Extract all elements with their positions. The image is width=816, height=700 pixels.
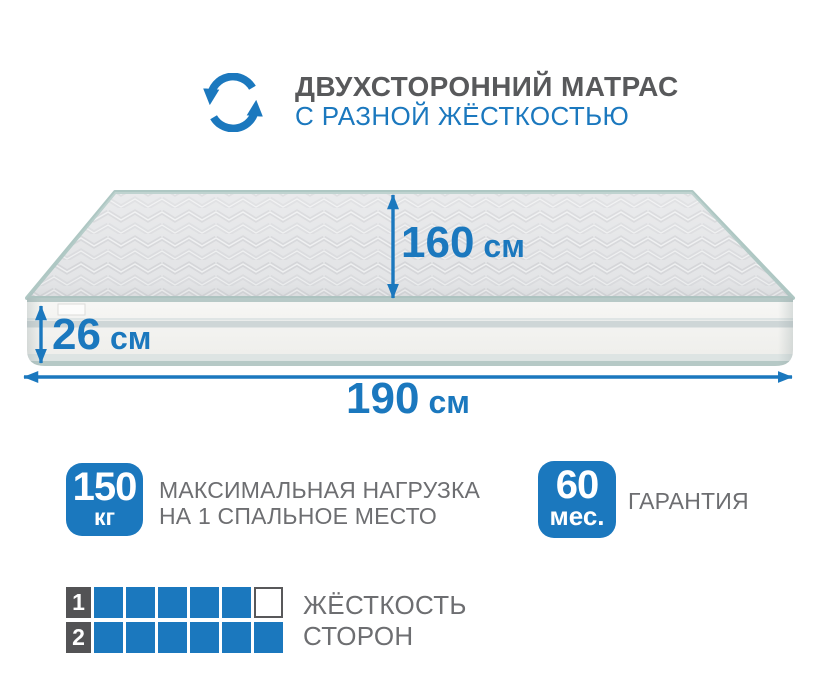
firmness-cell [94,622,123,653]
thickness-dimension-label: 26 см [52,313,151,357]
max-load-label: МАКСИМАЛЬНАЯ НАГРУЗКА НА 1 СПАЛЬНОЕ МЕСТ… [159,477,480,529]
firmness-cell [254,587,283,618]
warranty-label: ГАРАНТИЯ [628,488,749,514]
firmness-row-number: 2 [66,622,91,653]
firmness-cell [126,587,155,618]
firmness-row: 2 [66,622,283,653]
firmness-row-number: 1 [66,587,91,618]
max-load-unit: кг [94,505,115,529]
warranty-value: 60 [556,468,599,503]
firmness-cell [126,622,155,653]
warranty-badge: 60 мес. [538,461,616,538]
top-width-dimension-label: 160 см [401,221,525,265]
firmness-cell [254,622,283,653]
max-load-label-line1: МАКСИМАЛЬНАЯ НАГРУЗКА [159,477,480,503]
firmness-cell [222,587,251,618]
warranty-label-line1: ГАРАНТИЯ [628,488,749,514]
firmness-row: 1 [66,587,283,618]
firmness-cell [158,587,187,618]
max-load-badge: 150 кг [66,463,143,536]
top-width-value: 160 [401,221,474,265]
length-unit: см [428,386,469,418]
thickness-unit: см [110,322,151,354]
firmness-cell [94,587,123,618]
firmness-cell [222,622,251,653]
firmness-cell [190,622,219,653]
max-load-value: 150 [73,470,137,505]
top-width-unit: см [483,230,524,262]
firmness-label: ЖЁСТКОСТЬ СТОРОН [303,590,467,652]
thickness-value: 26 [52,313,101,357]
firmness-label-line1: ЖЁСТКОСТЬ [303,590,467,621]
max-load-label-line2: НА 1 СПАЛЬНОЕ МЕСТО [159,503,480,529]
mattress-infographic: ДВУХСТОРОННИЙ МАТРАС С РАЗНОЙ ЖЁСТКОСТЬЮ [0,0,816,700]
length-dimension-label: 190 см [346,377,470,421]
firmness-label-line2: СТОРОН [303,621,467,652]
warranty-unit: мес. [549,503,604,530]
length-value: 190 [346,377,419,421]
firmness-cell [158,622,187,653]
firmness-grid: 12 [66,587,283,653]
firmness-cell [190,587,219,618]
